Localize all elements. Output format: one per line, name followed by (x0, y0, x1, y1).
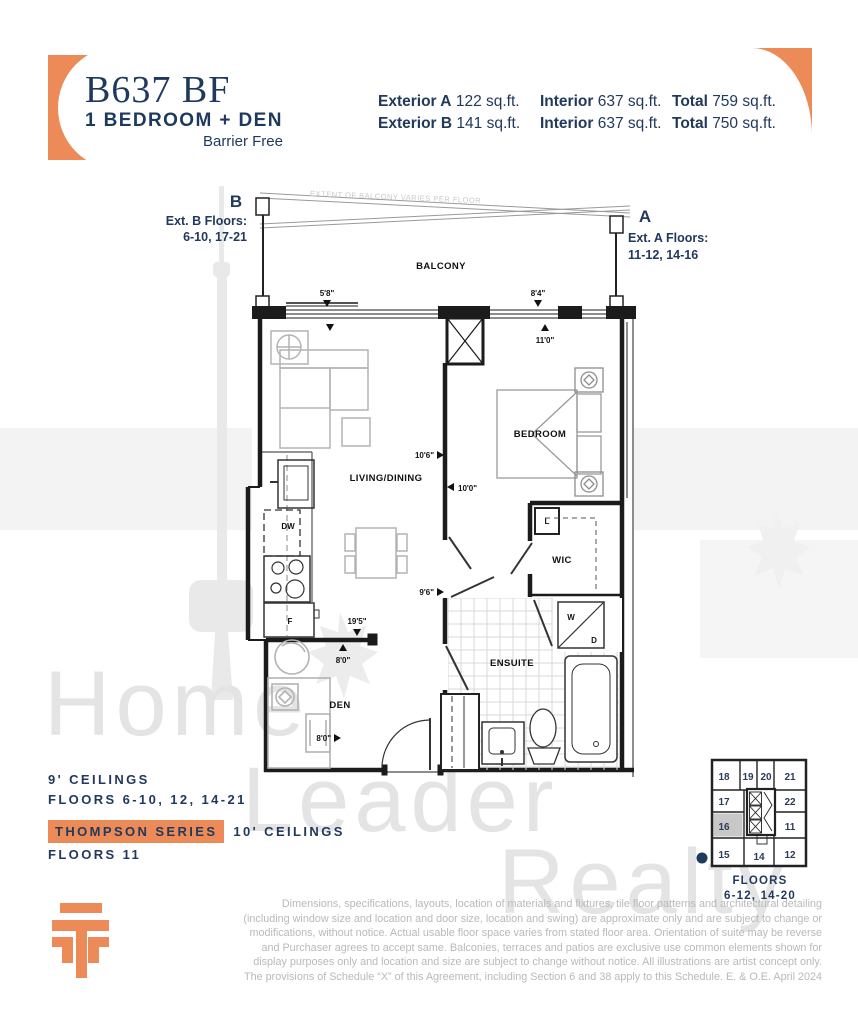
balcony-extent-note: EXTENT OF BALCONY VARIES PER FLOOR (310, 189, 482, 205)
dim-den-width: 8'0" (336, 656, 351, 665)
disclaimer-line: Dimensions, specifications, layouts, loc… (222, 897, 822, 912)
room-label-balcony: BALCONY (416, 261, 466, 272)
disclaimer-line: and Purchaser agrees to accept same. Bal… (222, 941, 822, 956)
floorplan-sheet: Home Leader Realty B637 BF 1 BEDROOM + D… (0, 0, 858, 1030)
keyplan-unit: 12 (784, 850, 796, 861)
marker-a-letter: A (639, 207, 651, 226)
dim-bedroom-length: 11'0" (536, 336, 555, 345)
stats-row-b: Exterior B 141 sq.ft. Interior 637 sq.ft… (378, 115, 798, 137)
stat-value: 637 sq.ft. (598, 115, 662, 132)
keyplan-unit: 22 (784, 797, 796, 808)
dimensions: 5'8" 8'4" 11'0" 10'6" 10'0" 9'6" 19'5" 8… (316, 289, 554, 743)
disclaimer-line: display purposes only and location and s… (222, 955, 822, 970)
dim-hall: 9'6" (419, 588, 434, 597)
ceilings-line4: FLOORS 11 (48, 847, 141, 862)
kitchen (262, 452, 319, 637)
room-label-wic: WIC (552, 555, 572, 566)
stat-label: Interior (540, 115, 593, 132)
top-wall (252, 303, 636, 331)
ceilings-line3: 10' CEILINGS (233, 824, 344, 839)
keyplan-unit: 20 (760, 772, 772, 783)
room-label-den: DEN (329, 700, 350, 711)
disclaimer-line: (including window size and location and … (222, 912, 822, 927)
keyplan-unit-highlighted: 16 (718, 822, 730, 833)
thompson-t-logo (52, 903, 109, 978)
keyplan-unit: 21 (784, 772, 796, 783)
keyplan-unit: 18 (718, 772, 730, 783)
unit-type: 1 BEDROOM + DEN (85, 110, 285, 132)
marker-b-letter: B (230, 192, 242, 211)
stat-label: Exterior A (378, 93, 452, 110)
ceilings-line1: 9' CEILINGS (48, 772, 150, 787)
label-dishwasher: DW (281, 522, 295, 531)
marker-a-line2: 11-12, 14-16 (628, 248, 698, 262)
keyplan: 18 19 20 21 17 22 16 11 15 14 12 FLOORS … (697, 760, 807, 902)
stats-row-a: Exterior A 122 sq.ft. Interior 637 sq.ft… (378, 93, 798, 115)
stat-value: 759 sq.ft. (712, 93, 776, 110)
stat-label: Total (672, 93, 708, 110)
keyplan-unit: 15 (718, 850, 730, 861)
disclaimer-line: modifications, without notice. Actual us… (222, 926, 822, 941)
marker-b-line1: Ext. B Floors: (166, 214, 247, 228)
entry (382, 537, 494, 770)
dim-den-entry: 8'0" (316, 734, 331, 743)
stat-value: 141 sq.ft. (456, 115, 520, 132)
keyplan-unit: 11 (785, 822, 796, 833)
shaft (447, 318, 483, 364)
stat-value: 750 sq.ft. (712, 115, 776, 132)
label-washer: W (567, 613, 575, 622)
room-label-living: LIVING/DINING (350, 473, 423, 484)
stat-label: Exterior B (378, 115, 452, 132)
keyplan-location-dot (697, 853, 708, 864)
dim-living-length: 19'5" (347, 617, 366, 626)
floorplan-drawing: EXTENT OF BALCONY VARIES PER FLOOR (0, 0, 858, 1030)
stat-interior-a: Interior 637 sq.ft. (540, 93, 661, 111)
label-dryer: D (591, 636, 597, 645)
label-fridge: F (288, 617, 293, 626)
dim-bedroom-width: 10'0" (458, 484, 477, 493)
keyplan-caption1: FLOORS (732, 875, 787, 887)
dim-living-width: 10'6" (415, 451, 434, 460)
unit-subtype: Barrier Free (85, 133, 283, 150)
ceilings-line2: FLOORS 6-10, 12, 14-21 (48, 792, 247, 807)
dim-balcony-door: 5'8" (320, 289, 335, 298)
living-furniture (271, 331, 407, 578)
disclaimer: Dimensions, specifications, layouts, loc… (222, 897, 822, 985)
stat-exterior-b: Exterior B 141 sq.ft. (378, 115, 520, 133)
stat-interior-b: Interior 637 sq.ft. (540, 115, 661, 133)
keyplan-unit: 14 (753, 852, 765, 863)
label-linen: L (545, 517, 550, 526)
room-label-bedroom: BEDROOM (514, 429, 566, 440)
stat-label: Total (672, 115, 708, 132)
dim-bedroom-window: 8'4" (531, 289, 546, 298)
disclaimer-line: The provisions of Schedule “X” of this A… (222, 970, 822, 985)
room-label-ensuite: ENSUITE (490, 658, 534, 669)
wic (511, 508, 596, 590)
keyplan-unit: 17 (718, 797, 730, 808)
marker-a-line1: Ext. A Floors: (628, 231, 708, 245)
stat-total-b: Total 750 sq.ft. (672, 115, 776, 133)
stat-total-a: Total 759 sq.ft. (672, 93, 776, 111)
thompson-series-badge: THOMPSON SERIES (48, 820, 224, 843)
den-furniture (268, 640, 330, 768)
stat-value: 637 sq.ft. (598, 93, 662, 110)
keyplan-unit: 19 (742, 772, 754, 783)
keyplan-core (747, 789, 775, 835)
stat-label: Interior (540, 93, 593, 110)
marker-b-line2: 6-10, 17-21 (183, 230, 247, 244)
series-row: THOMPSON SERIES 10' CEILINGS (48, 820, 345, 843)
unit-code: B637 BF (85, 68, 230, 112)
balcony-posts (256, 198, 623, 309)
stat-exterior-a: Exterior A 122 sq.ft. (378, 93, 520, 111)
washer-dryer (534, 598, 622, 652)
stat-value: 122 sq.ft. (456, 93, 520, 110)
